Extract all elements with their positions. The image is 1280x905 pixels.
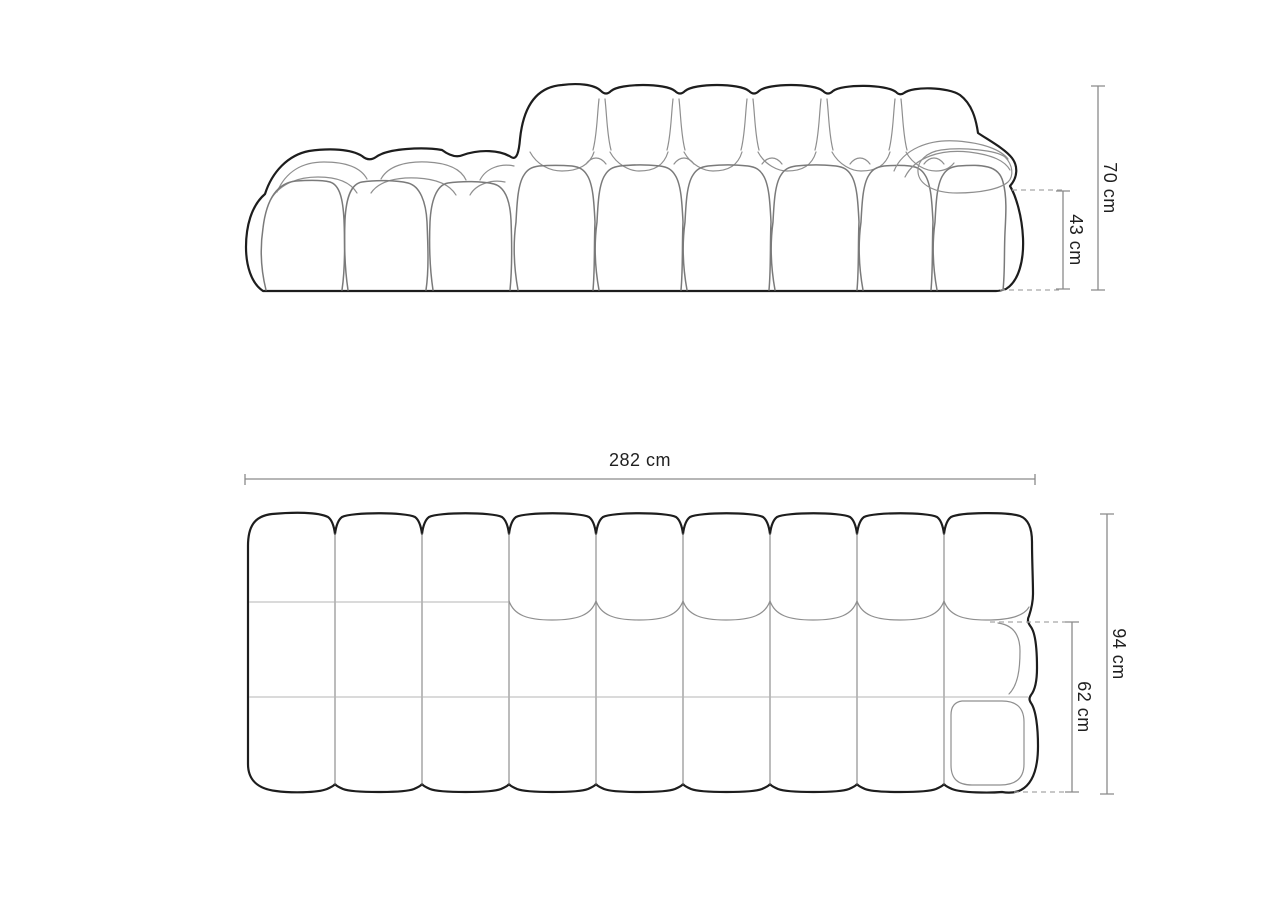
plan-view: 282 cm 62 cm 94 cm (245, 450, 1129, 794)
total-height-label: 70 cm (1100, 162, 1120, 214)
dimension-drawing: 43 cm 70 cm 282 cm (0, 0, 1280, 905)
drawing-canvas: 43 cm 70 cm 282 cm (0, 0, 1280, 905)
dimension-line-total-width (245, 474, 1035, 485)
elevation-view: 43 cm 70 cm (246, 84, 1120, 291)
seat-height-label: 43 cm (1066, 214, 1086, 266)
sofa-elevation-silhouette (246, 84, 1023, 291)
sofa-plan-outline (248, 513, 1038, 793)
total-width-label: 282 cm (609, 450, 671, 470)
total-depth-label: 94 cm (1109, 628, 1129, 680)
seat-depth-label: 62 cm (1074, 681, 1094, 733)
